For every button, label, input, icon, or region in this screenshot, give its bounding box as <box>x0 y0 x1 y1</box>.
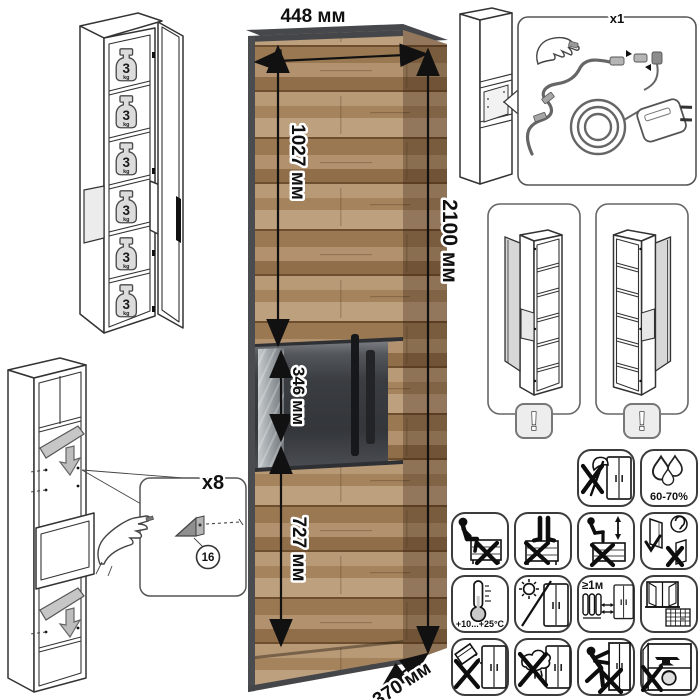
lower-door-label: 727 мм <box>288 516 309 581</box>
svg-text:kg: kg <box>123 122 129 128</box>
no-direct-sunlight-icon <box>515 576 571 632</box>
part-number: 16 <box>202 552 215 564</box>
warning-badge-right: ! <box>624 404 660 438</box>
svg-text:kg: kg <box>123 217 129 223</box>
led-lighting-diagram: x1 <box>460 8 698 185</box>
lower-door-handle <box>366 350 375 444</box>
svg-text:kg: kg <box>123 169 129 175</box>
humidity-icon: 60-70% <box>641 450 697 506</box>
shelf-assembly-diagram: x8 16 <box>8 358 246 692</box>
weight-value: 3 <box>123 61 130 76</box>
svg-text:3: 3 <box>123 203 130 218</box>
open-glass-door <box>158 22 183 328</box>
humidity-label: 60-70% <box>650 491 688 503</box>
ventilation-icon <box>641 576 697 632</box>
distance-label: ≥1м <box>582 580 603 592</box>
heater-distance-icon: ≥1м <box>578 576 634 632</box>
care-icons-grid: 60-70% <box>452 450 697 695</box>
warning-badge-left: ! <box>516 404 552 438</box>
svg-text:kg: kg <box>123 311 129 317</box>
no-climbing-icon <box>578 513 634 569</box>
temperature-label: +10...+25°C <box>456 619 505 629</box>
no-standing-icon <box>515 513 571 569</box>
part-number-badge: 16 <box>197 546 220 569</box>
shelf-load-diagram: 3 kg 3 kg 3 kg 3 kg 3 kg 3 kg <box>80 13 183 333</box>
middle-section-label: 346 мм <box>289 367 308 425</box>
connector-male <box>634 54 647 62</box>
door-variant-panels: ! ! <box>488 204 688 438</box>
no-heavy-items-icon <box>641 639 697 695</box>
weight-unit: kg <box>123 75 129 81</box>
led-qty-label: x1 <box>610 11 624 26</box>
no-sitting-icon <box>452 513 508 569</box>
temperature-range-icon: +10...+25°C <box>452 576 508 632</box>
upper-door-label: 1027 мм <box>287 124 308 200</box>
no-spill-icon <box>452 639 508 695</box>
warning-mark: ! <box>530 406 539 436</box>
door-handle <box>176 196 181 243</box>
fastener-qty-label: x8 <box>202 472 224 494</box>
svg-text:3: 3 <box>123 155 130 170</box>
width-label: 448 мм <box>280 6 345 27</box>
fastener-panel <box>140 478 246 596</box>
middle-left-flap <box>84 186 104 243</box>
door-click-check-icon <box>641 513 697 569</box>
no-sharp-tools-icon <box>578 450 634 506</box>
instruction-sheet-svg: 3 kg 3 kg 3 kg 3 kg 3 kg 3 kg 448 мм 102… <box>0 0 700 700</box>
svg-text:3: 3 <box>123 250 130 265</box>
warning-mark: ! <box>638 406 647 436</box>
product-dimensions-photo: 448 мм 1027 мм 346 мм 727 мм 2100 мм 370… <box>246 6 461 700</box>
no-wet-cloth-icon <box>515 639 571 695</box>
no-moving-loaded-icon <box>578 639 634 695</box>
instruction-sheet: 3 kg 3 kg 3 kg 3 kg 3 kg 3 kg 448 мм 102… <box>0 0 700 700</box>
svg-text:3: 3 <box>123 297 130 312</box>
svg-text:kg: kg <box>123 264 129 270</box>
height-label: 2100 мм <box>438 199 461 283</box>
connector-female <box>610 57 624 65</box>
upper-door-handle <box>351 334 359 456</box>
angle-plug <box>652 52 662 64</box>
svg-text:3: 3 <box>123 108 130 123</box>
